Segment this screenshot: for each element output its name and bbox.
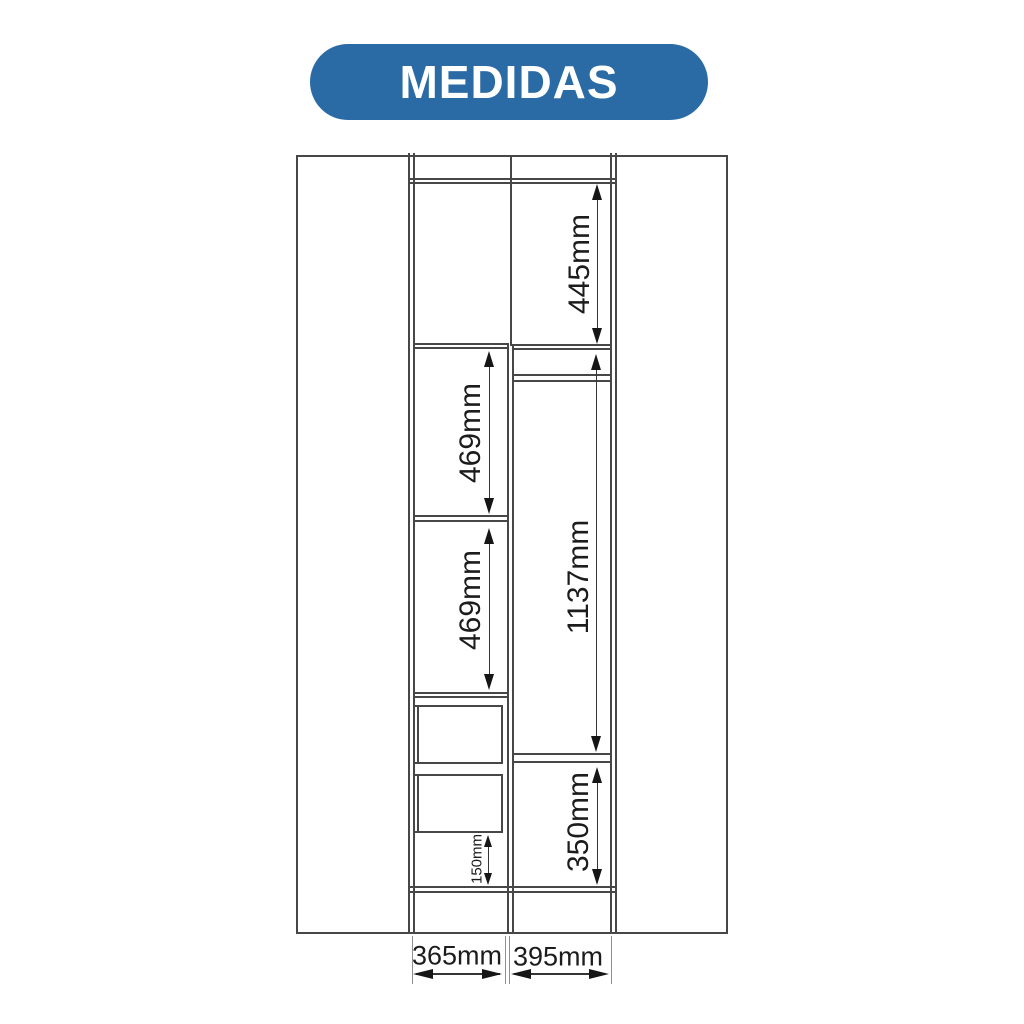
center-divider-line bbox=[507, 345, 509, 934]
left-shelf-line bbox=[413, 343, 509, 345]
left-shelf-line bbox=[413, 696, 509, 698]
right-shelf-line bbox=[512, 348, 611, 350]
left-shelf-line bbox=[413, 347, 509, 349]
dimension-label: 445mm bbox=[563, 214, 597, 314]
medidas-badge: MEDIDAS bbox=[310, 44, 708, 120]
wardrobe-measurements-figure: MEDIDAS bbox=[0, 0, 1024, 1024]
dimension-line bbox=[489, 531, 490, 684]
dimension-line bbox=[596, 357, 597, 748]
dimension-line bbox=[597, 770, 598, 880]
inner-right-panel-line bbox=[610, 153, 612, 934]
arrow-up-icon bbox=[484, 351, 494, 367]
outer-right-panel-line bbox=[726, 155, 728, 934]
bottom-panel-line bbox=[296, 932, 728, 934]
dimension-label: 469mm bbox=[454, 383, 488, 483]
extension-line bbox=[611, 936, 612, 984]
drawer-box bbox=[413, 705, 503, 764]
left-shelf-line bbox=[413, 515, 509, 517]
dimension-label: 150mm bbox=[469, 834, 486, 884]
arrow-down-icon bbox=[484, 674, 494, 690]
drawer-box bbox=[413, 774, 503, 833]
arrow-up-icon bbox=[591, 354, 601, 370]
right-shelf-line bbox=[512, 344, 611, 346]
bottom-shelf-line bbox=[408, 886, 617, 888]
arrow-up-icon bbox=[592, 184, 602, 200]
top-panel-line bbox=[296, 155, 728, 157]
arrow-down-icon bbox=[592, 328, 602, 344]
dimension-label: 365mm bbox=[412, 941, 502, 972]
extension-line bbox=[505, 936, 506, 984]
left-shelf-line bbox=[413, 692, 509, 694]
inner-right-panel-line bbox=[615, 153, 617, 934]
drawer-front-edge-line bbox=[417, 776, 419, 831]
dimension-label: 1137mm bbox=[562, 520, 596, 635]
dimension-label: 469mm bbox=[454, 550, 488, 650]
center-divider-line bbox=[510, 156, 512, 346]
inner-left-panel-line bbox=[408, 153, 410, 934]
arrow-up-icon bbox=[484, 528, 494, 544]
medidas-badge-label: MEDIDAS bbox=[399, 55, 618, 109]
dimension-line bbox=[597, 188, 598, 340]
arrow-down-icon bbox=[484, 498, 494, 514]
outer-left-panel-line bbox=[296, 155, 298, 934]
left-shelf-line bbox=[413, 520, 509, 522]
arrow-down-icon bbox=[591, 736, 601, 752]
right-shelf-line bbox=[514, 753, 611, 755]
center-divider-line bbox=[512, 345, 514, 934]
top-shelf-line bbox=[408, 182, 617, 184]
dimension-line bbox=[489, 354, 490, 510]
top-shelf-line bbox=[408, 178, 617, 180]
dimension-label: 350mm bbox=[562, 772, 596, 872]
right-shelf-line bbox=[514, 761, 611, 763]
bottom-shelf-line bbox=[408, 891, 617, 893]
extension-line bbox=[509, 936, 510, 984]
dimension-label: 395mm bbox=[513, 942, 603, 973]
drawer-front-edge-line bbox=[417, 707, 419, 762]
